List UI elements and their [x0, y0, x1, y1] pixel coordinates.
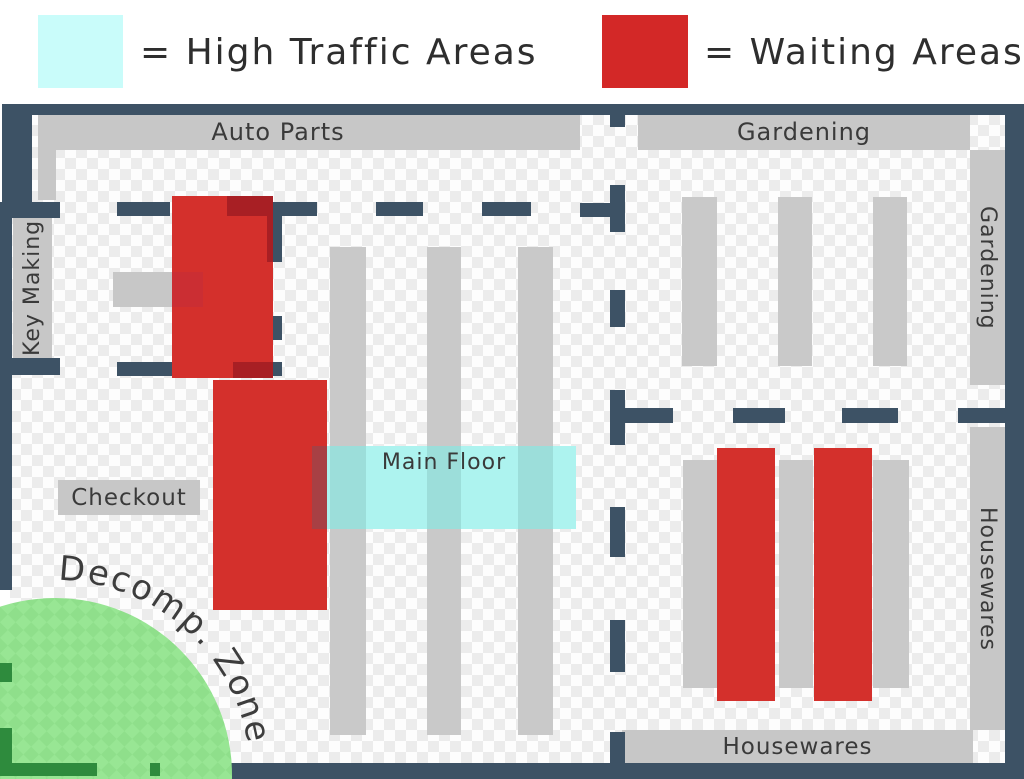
shelf — [873, 460, 909, 688]
waiting-area-over-wall — [267, 215, 273, 262]
waiting-legend-label: = Waiting Areas — [704, 28, 1024, 76]
wall-right — [1005, 104, 1024, 779]
shelf — [778, 197, 812, 366]
wall-divider-dash — [610, 104, 625, 127]
waiting-area — [717, 448, 775, 701]
gardening-side-label: Gardening — [970, 150, 1005, 385]
wall-divider-dash — [610, 507, 625, 557]
wall-alcove-stub-bottom — [0, 358, 60, 375]
high-traffic-swatch — [38, 15, 123, 88]
housewares-bottom-label: Housewares — [622, 730, 973, 763]
wall-alcove-stub-top — [0, 202, 60, 218]
waiting-swatch — [602, 15, 688, 88]
wall-divider-dash — [610, 290, 625, 327]
wall-dash — [625, 408, 673, 423]
waiting-area-over-wall — [233, 362, 273, 378]
wall-left-upper — [2, 104, 32, 218]
main-floor-label: Main Floor — [312, 448, 576, 476]
checkout-label: Checkout — [58, 480, 200, 515]
wall-divider-dash — [610, 620, 625, 672]
wall-dash — [842, 408, 898, 423]
shelf — [873, 197, 907, 366]
wall-dash — [117, 362, 177, 376]
wall-left-alcove — [0, 218, 12, 358]
waiting-area — [814, 448, 872, 701]
waiting-area-over-wall — [227, 196, 273, 216]
high-traffic-legend-label: = High Traffic Areas — [140, 28, 538, 76]
wall-dash — [580, 203, 610, 217]
wall-divider-dash — [610, 390, 625, 445]
decomp-zone: Decomp. Zone — [0, 520, 300, 779]
housewares-side-label: Housewares — [970, 427, 1005, 730]
wall-dash — [733, 408, 785, 423]
wall-dash — [376, 202, 423, 216]
shelf — [683, 460, 717, 688]
gardening-top-label: Gardening — [638, 116, 970, 148]
wall-dash — [273, 202, 317, 216]
legend: = High Traffic Areas = Waiting Areas — [0, 0, 1024, 104]
waiting-area-over-counter — [172, 272, 203, 307]
shelf — [682, 197, 717, 366]
auto-parts-band-return — [38, 150, 56, 200]
wall-dash — [482, 202, 531, 216]
key-making-label: Key Making — [13, 218, 52, 358]
wall-dash — [958, 408, 1005, 423]
shelf — [779, 460, 813, 688]
wall-divider-dash — [610, 185, 625, 232]
wall-top — [2, 104, 1024, 115]
wall-dash — [117, 202, 170, 216]
store-map: = High Traffic Areas = Waiting Areas — [0, 0, 1024, 779]
auto-parts-label: Auto Parts — [38, 116, 518, 148]
